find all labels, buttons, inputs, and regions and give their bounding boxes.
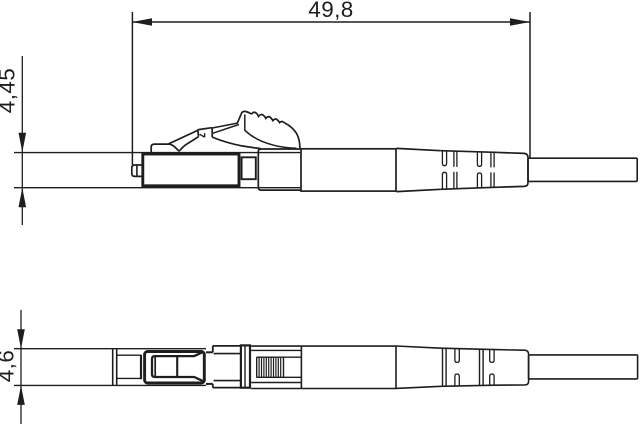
svg-text:4,6: 4,6: [0, 350, 19, 382]
svg-text:4,45: 4,45: [0, 68, 20, 113]
svg-text:49,8: 49,8: [308, 0, 353, 22]
